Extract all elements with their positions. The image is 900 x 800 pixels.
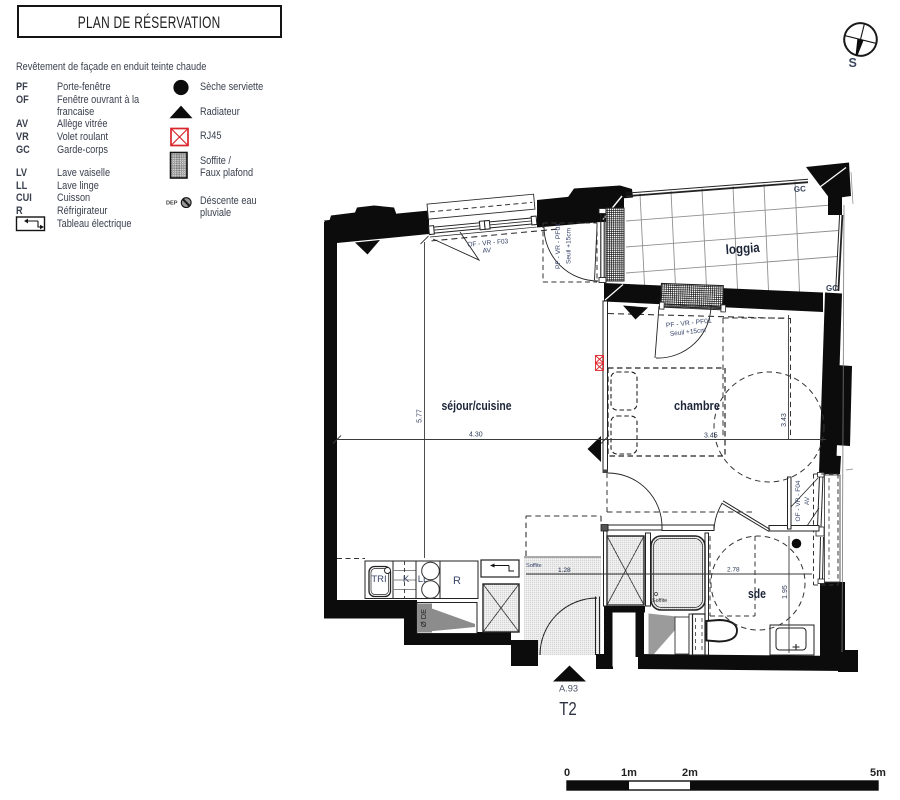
svg-text:A.93: A.93	[559, 684, 578, 694]
svg-text:GC: GC	[826, 284, 838, 293]
svg-text:TRI: TRI	[371, 574, 386, 585]
svg-text:T2: T2	[559, 699, 577, 719]
svg-text:chambre: chambre	[674, 398, 720, 413]
svg-text:DEP: DEP	[166, 201, 178, 207]
svg-text:Soffite: Soffite	[526, 563, 542, 569]
svg-text:GC: GC	[794, 184, 807, 194]
svg-text:3.43: 3.43	[781, 413, 788, 427]
svg-text:OF - VR - F04: OF - VR - F04	[795, 480, 802, 521]
svg-text:2m: 2m	[682, 767, 698, 779]
svg-text:5.77: 5.77	[417, 409, 424, 423]
svg-text:PF - VR - PF01: PF - VR - PF01	[555, 223, 562, 269]
svg-text:AV: AV	[804, 496, 811, 505]
svg-text:R: R	[453, 575, 461, 587]
svg-text:Seuil +15cm: Seuil +15cm	[566, 227, 573, 264]
svg-text:K: K	[403, 574, 410, 585]
svg-text:1m: 1m	[621, 767, 637, 779]
svg-text:sde: sde	[748, 587, 766, 601]
svg-text:Soffite: Soffite	[652, 598, 667, 604]
svg-text:1.28: 1.28	[558, 567, 571, 574]
svg-text:AV: AV	[482, 247, 492, 255]
svg-text:0: 0	[564, 767, 570, 779]
svg-text:1.95: 1.95	[782, 585, 789, 599]
svg-text:2.78: 2.78	[727, 567, 740, 574]
svg-text:3.45: 3.45	[704, 433, 718, 440]
svg-text:loggia: loggia	[725, 240, 760, 257]
svg-text:4.30: 4.30	[469, 432, 483, 439]
svg-text:séjour/cuisine: séjour/cuisine	[442, 398, 512, 413]
svg-text:Ø DE: Ø DE	[419, 609, 428, 627]
svg-text:5m: 5m	[870, 767, 886, 779]
svg-text:S: S	[849, 56, 857, 70]
